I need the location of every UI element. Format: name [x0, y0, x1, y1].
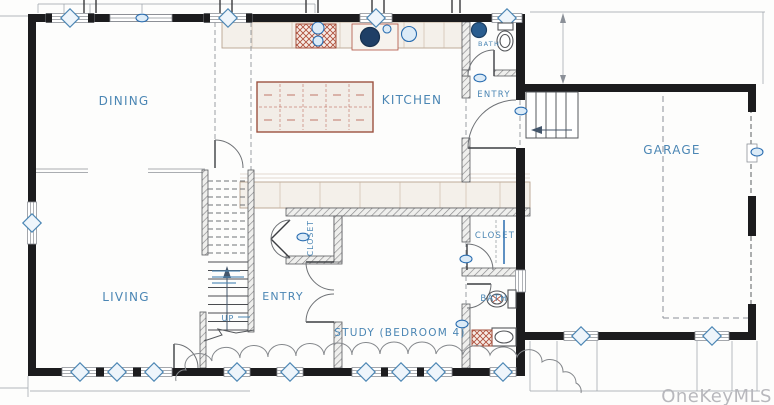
window-marker	[357, 363, 375, 381]
bath-sink-icon	[472, 23, 487, 38]
garage-steps	[526, 92, 578, 138]
house-right-wall	[516, 14, 525, 100]
garage-wall-top	[524, 84, 755, 92]
faucet-icon	[383, 25, 391, 33]
exterior-wall-top	[28, 14, 524, 22]
hood-symbol-icon	[313, 36, 323, 46]
room-label-dining: DINING	[99, 94, 150, 108]
wall-extension-ticks	[84, 0, 460, 13]
fixture-tag-icon	[474, 74, 486, 82]
watermark: OneKeyMLS	[661, 386, 772, 405]
window-marker	[703, 327, 721, 345]
kitchen-sink-icon	[361, 28, 380, 47]
room-label-entry-main: ENTRY	[262, 290, 304, 303]
garage-dashed-outline	[663, 96, 748, 318]
room-label-entry-side: ENTRY	[477, 90, 510, 100]
radiator-icon	[472, 330, 492, 346]
window-marker	[281, 363, 299, 381]
floor-plan-page: DINING KITCHEN BATH ENTRY GARAGE LIVING …	[0, 0, 774, 405]
floor-plan-drawing: DINING KITCHEN BATH ENTRY GARAGE LIVING …	[0, 0, 774, 405]
window-marker	[71, 363, 89, 381]
kitchen-bottom-counter	[240, 174, 530, 208]
room-label-garage: GARAGE	[643, 143, 700, 157]
exterior-wall-left	[28, 14, 36, 376]
stair-arrow-head	[223, 266, 231, 278]
house-right-wall	[516, 148, 525, 376]
door-dining-kitchen	[215, 140, 243, 168]
room-label-living: LIVING	[102, 290, 149, 304]
room-label-closet-hall: CLOSET	[306, 220, 315, 256]
window-marker	[108, 363, 126, 381]
window-marker	[572, 327, 590, 345]
hood-symbol-icon	[312, 22, 324, 34]
stair-break-line	[204, 329, 254, 341]
stairs-up-label: UP	[221, 314, 234, 323]
kitchen-top-counter	[222, 22, 462, 50]
window-marker	[145, 363, 163, 381]
window-marker	[494, 363, 512, 381]
room-label-bath-top: BATH	[478, 40, 500, 48]
room-label-kitchen: KITCHEN	[382, 93, 442, 107]
opening-tag-icon	[136, 14, 148, 22]
window-marker	[61, 9, 79, 27]
room-label-closet-right: CLOSET	[475, 231, 515, 241]
window-marker	[228, 363, 246, 381]
closet-rod	[496, 220, 504, 264]
door-double-study	[306, 262, 334, 322]
door-side-entry	[468, 100, 516, 148]
window-marker	[392, 363, 410, 381]
door-front-vestibule	[174, 344, 198, 368]
room-label-bath-lower: BATH	[480, 294, 507, 304]
fixture-tag-icon	[460, 255, 472, 263]
door-bath-top	[468, 50, 494, 76]
window-marker	[427, 363, 445, 381]
kitchen-island	[257, 82, 373, 132]
door-bifold-closet-hall	[271, 220, 290, 258]
dishwasher-icon	[402, 27, 417, 42]
vanity-sink-icon	[492, 328, 516, 346]
window-marker	[23, 214, 41, 232]
room-label-study: STUDY (BEDROOM 4)	[334, 327, 465, 339]
window-tag-icon	[751, 148, 763, 156]
fixture-tag-icon	[515, 107, 527, 115]
